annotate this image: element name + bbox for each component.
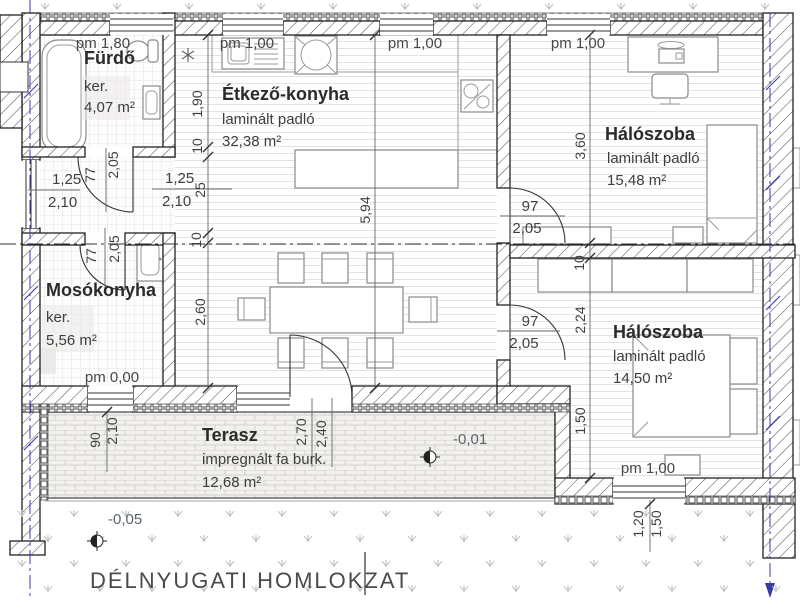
floor-plan-drawing: Fürdő ker. 4,07 m² Étkező-konyha laminál… [0,0,800,600]
dim-v360: 3,60 [572,132,588,159]
pillow [730,389,757,434]
facade-title: DÉLNYUGATI HOMLOKZAT [90,568,410,593]
level-pm100-konyha-bal: pm 1,00 [220,35,274,52]
level-pm180: pm 1,80 [76,35,130,52]
right-wall [763,13,793,510]
dim-v10-konyha: 10 [189,138,205,154]
dim-d205-moso: 2,05 [106,235,122,262]
room-area-halo1: 15,48 m² [607,172,666,189]
desk-chair [652,74,688,98]
room-name-terasz: Terasz [202,425,258,445]
dim-d97-also: 97 [522,313,539,330]
insulation-strip-terrace [40,404,48,500]
section-arrow [765,583,775,598]
room-area-moso: 5,56 m² [46,332,97,349]
window-living [237,387,290,411]
dim-v210-terasz: 2,10 [104,417,120,444]
dim-v90: 90 [87,432,103,448]
dining-table [270,287,403,333]
room-finish-furdo: ker. [84,78,108,95]
level-pm100-halo2: pm 1,00 [621,460,675,477]
dim-w125-left: 1,25 [52,171,81,188]
dim-w125-mid: 1,25 [165,170,194,187]
terrace-side-wall [555,404,570,480]
room-name-halo1: Hálószoba [605,124,696,144]
level-terrace: -0,01 [453,431,487,448]
level-pm100-konyha-jobb: pm 1,00 [388,35,442,52]
room-finish-moso: ker. [46,309,70,326]
dim-w210-mid: 2,10 [162,193,191,210]
room-finish-halo2: laminált padló [613,348,706,365]
window-left-wall [23,160,39,228]
room-finish-konyha: laminált padló [222,111,315,128]
dim-v25: 25 [192,182,208,198]
room-area-halo2: 14,50 m² [613,370,672,387]
dim-d77-furdo: 77 [82,167,98,183]
floor-plan: Fürdő ker. 4,07 m² Étkező-konyha laminál… [0,0,800,600]
room-finish-halo1: laminált padló [607,150,700,167]
nightstand [673,227,703,243]
dim-d205-also: 2,05 [509,335,538,352]
room-area-terasz: 12,68 m² [202,474,261,491]
dim-d97-felso: 97 [522,198,539,215]
dim-v150-halo: 1,50 [572,407,588,434]
kitchen-island [295,150,458,188]
window-bathroom [110,14,173,35]
window-laundry [88,387,133,411]
level-pm100-halo1: pm 1,00 [551,35,605,52]
dim-v240: 2,40 [313,420,329,447]
dim-v190: 1,90 [189,90,205,117]
dim-v260: 2,60 [192,298,208,325]
level-marker-ground [87,531,107,551]
window-bedroom2 [613,479,685,503]
dim-w210-left: 2,10 [48,194,77,211]
level-pm000-moso: pm 0,00 [85,369,139,386]
dim-v224: 2,24 [572,306,588,333]
room-finish-terasz: impregnált fa burk. [202,451,326,468]
bedroom-divider-wall [510,245,795,258]
dim-d77-moso: 77 [83,248,99,264]
room-area-furdo: 4,07 m² [84,99,135,116]
dim-v120-ablak: 1,20 [630,510,646,537]
room-name-moso: Mosókonyha [46,280,157,300]
room-name-konyha: Étkező-konyha [222,83,350,104]
room-area-konyha: 32,38 m² [222,133,281,150]
dim-v270: 2,70 [293,418,309,445]
level-ground: -0,05 [108,511,142,528]
bathtub [42,40,86,152]
window-bedroom1 [547,14,610,35]
dim-d205-felso: 2,05 [512,220,541,237]
window-kitchen-left [223,14,283,35]
pillow [730,338,757,384]
window-kitchen-right [380,14,433,35]
dim-d205-furdo: 2,05 [105,151,121,178]
room-name-halo2: Hálószoba [613,322,704,342]
dim-v150-ablak: 1,50 [648,510,664,537]
dim-v10-also: 10 [188,232,204,248]
dim-v594: 5,94 [357,196,373,223]
dim-v10-valaszto: 10 [571,255,587,271]
